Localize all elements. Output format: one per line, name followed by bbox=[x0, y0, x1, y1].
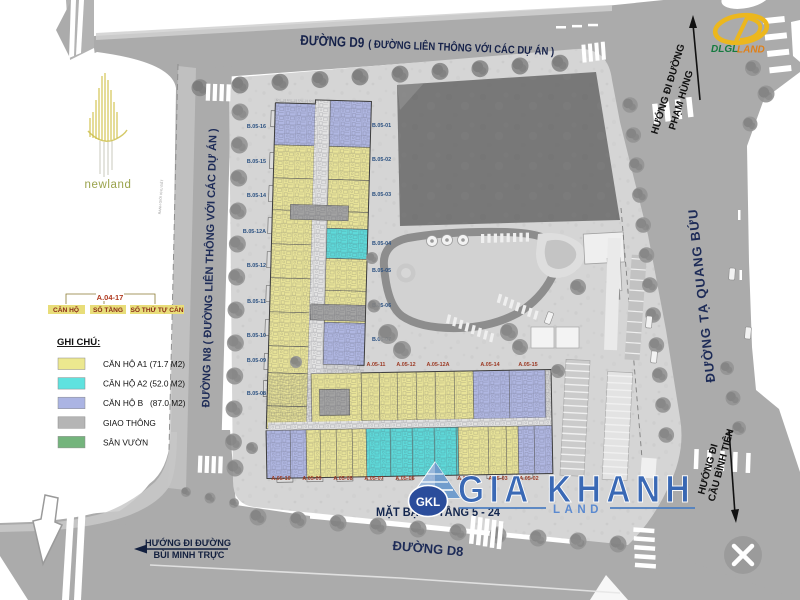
svg-text:A.05-08: A.05-08 bbox=[333, 476, 352, 482]
svg-text:A.05-07: A.05-07 bbox=[364, 476, 383, 482]
svg-text:B.05-14: B.05-14 bbox=[247, 193, 266, 199]
svg-text:A.05-10: A.05-10 bbox=[271, 476, 290, 482]
svg-text:GKL: GKL bbox=[416, 497, 440, 509]
svg-text:CĂN HỘ: CĂN HỘ bbox=[53, 305, 79, 314]
svg-text:CĂN HỘ B (87.0 M2): CĂN HỘ B (87.0 M2) bbox=[103, 398, 186, 408]
svg-text:GHI CHÚ:: GHI CHÚ: bbox=[57, 336, 100, 348]
svg-text:B.05-11: B.05-11 bbox=[247, 299, 266, 305]
svg-text:newland: newland bbox=[84, 179, 131, 191]
svg-text:B.05-05: B.05-05 bbox=[372, 268, 391, 274]
svg-text:A.04-17: A.04-17 bbox=[97, 293, 124, 302]
svg-text:DLGL: DLGL bbox=[711, 44, 738, 55]
svg-text:B.05-08: B.05-08 bbox=[247, 391, 266, 397]
svg-text:B.05-15: B.05-15 bbox=[247, 159, 266, 165]
svg-text:CĂN HỘ A2 (52.0 M2): CĂN HỘ A2 (52.0 M2) bbox=[103, 379, 185, 389]
svg-text:B.05-12A: B.05-12A bbox=[243, 229, 266, 235]
svg-text:B.05-10: B.05-10 bbox=[247, 333, 266, 339]
svg-text:GIAO THÔNG: GIAO THÔNG bbox=[103, 418, 156, 428]
svg-text:BÙI MINH TRỰC: BÙI MINH TRỰC bbox=[154, 549, 225, 560]
svg-text:A.05-14: A.05-14 bbox=[480, 362, 499, 368]
svg-text:B.05-01: B.05-01 bbox=[372, 123, 391, 129]
svg-text:B.05-09: B.05-09 bbox=[247, 358, 266, 364]
svg-text:B.05-04: B.05-04 bbox=[372, 241, 391, 247]
svg-text:A.05-11: A.05-11 bbox=[367, 362, 386, 368]
svg-text:B.05-16: B.05-16 bbox=[247, 124, 266, 130]
svg-text:B.05-12: B.05-12 bbox=[247, 263, 266, 269]
svg-text:A.05-06: A.05-06 bbox=[395, 476, 414, 482]
svg-text:LAND: LAND bbox=[553, 504, 603, 516]
svg-text:A.05-12A: A.05-12A bbox=[426, 362, 449, 368]
svg-text:CĂN HỘ A1 (71.7 M2): CĂN HỘ A1 (71.7 M2) bbox=[103, 359, 185, 369]
svg-text:A.05-12: A.05-12 bbox=[396, 362, 415, 368]
svg-text:A.05-15: A.05-15 bbox=[518, 362, 537, 368]
svg-text:A.05-09: A.05-09 bbox=[302, 476, 321, 482]
svg-text:SÂN VƯỜN: SÂN VƯỜN bbox=[103, 437, 148, 447]
svg-text:LAND: LAND bbox=[737, 45, 765, 56]
svg-text:B.05-02: B.05-02 bbox=[372, 157, 391, 163]
svg-text:B.05-03: B.05-03 bbox=[372, 192, 391, 198]
svg-text:HƯỚNG ĐI ĐƯỜNG: HƯỚNG ĐI ĐƯỜNG bbox=[145, 537, 231, 548]
svg-text:ĐƯỜNG D9: ĐƯỜNG D9 bbox=[300, 31, 365, 51]
